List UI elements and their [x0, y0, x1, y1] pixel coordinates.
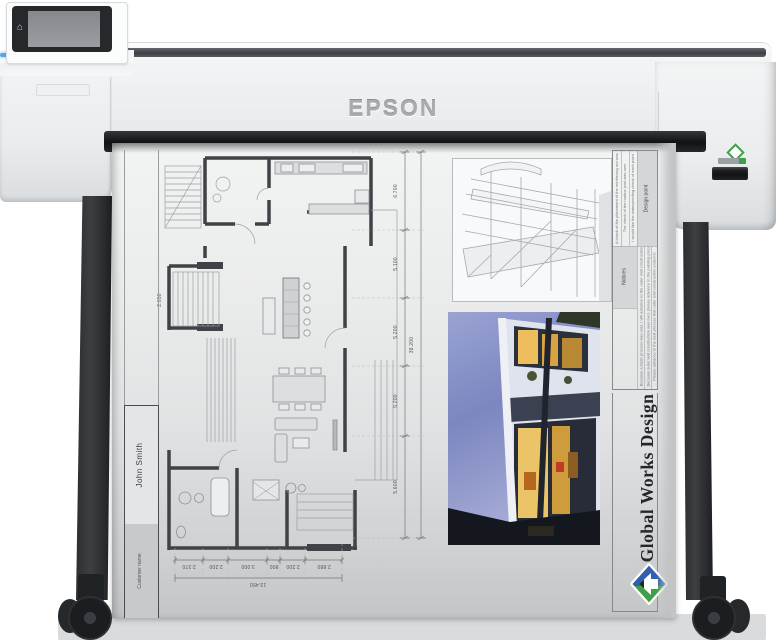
dim-label: 5.200 [392, 386, 400, 416]
dim-label: 5.200 [392, 317, 400, 347]
caster-wheel-left [56, 574, 120, 640]
maintenance-door-handle [36, 84, 90, 96]
dim-total-label: 13.450 [244, 580, 272, 588]
paper-right-edge [656, 143, 676, 618]
printer-left-cabinet [0, 62, 112, 202]
house-photo [448, 312, 600, 545]
dim-label: 2.200 [202, 562, 230, 570]
title-block: John Smith Customer name [124, 405, 159, 618]
dim-label: 2.200 [279, 562, 307, 570]
customer-name-label-cell: Customer name [125, 524, 158, 618]
certification-badge [718, 158, 746, 164]
design-point-note: The check of the routine joint was over [621, 152, 629, 244]
printer-product-photo: EPSON ⌂ [0, 0, 779, 640]
design-point-note: I would like the waterproofing check of … [629, 152, 637, 244]
stand-leg-right [683, 222, 713, 600]
caster-wheel-right [686, 576, 750, 640]
stand-leg-left [76, 196, 112, 600]
epson-logo: EPSON [348, 95, 439, 122]
customer-name-label: Customer name [137, 526, 145, 616]
printed-poster: 6.700 5.100 5.200 5.200 5.600 38.200 2.0… [112, 143, 676, 618]
touchscreen-bezel: ⌂ [12, 6, 112, 52]
lcd-screen [28, 11, 100, 47]
dim-label: 5.600 [392, 472, 400, 502]
dim-total-label: 38.200 [408, 328, 416, 362]
printer-lid-gap [126, 48, 766, 57]
dim-label: 5.100 [392, 249, 400, 279]
model-badge [712, 167, 748, 180]
design-point-note: A check of the placement of the reinforc… [613, 152, 621, 244]
control-panel: ⌂ [6, 2, 128, 64]
dim-label: 3.000 [234, 562, 262, 570]
3d-render-image [452, 158, 612, 302]
dim-label: 6.700 [392, 176, 400, 206]
floor-plan-drawing [157, 150, 400, 567]
notices-header: Notices [621, 247, 630, 307]
home-icon: ⌂ [17, 23, 23, 33]
dim-label: 2.880 [310, 562, 338, 570]
customer-name-value: John Smith [135, 410, 147, 520]
panel-hinge [0, 62, 134, 76]
title-block-column [124, 150, 159, 405]
customer-name-cell: John Smith [125, 406, 158, 525]
dim-label: 2.370 [175, 562, 203, 570]
notes-table: Design point Notices A check of the plac… [612, 150, 658, 390]
design-point-header: Design point [643, 154, 652, 244]
